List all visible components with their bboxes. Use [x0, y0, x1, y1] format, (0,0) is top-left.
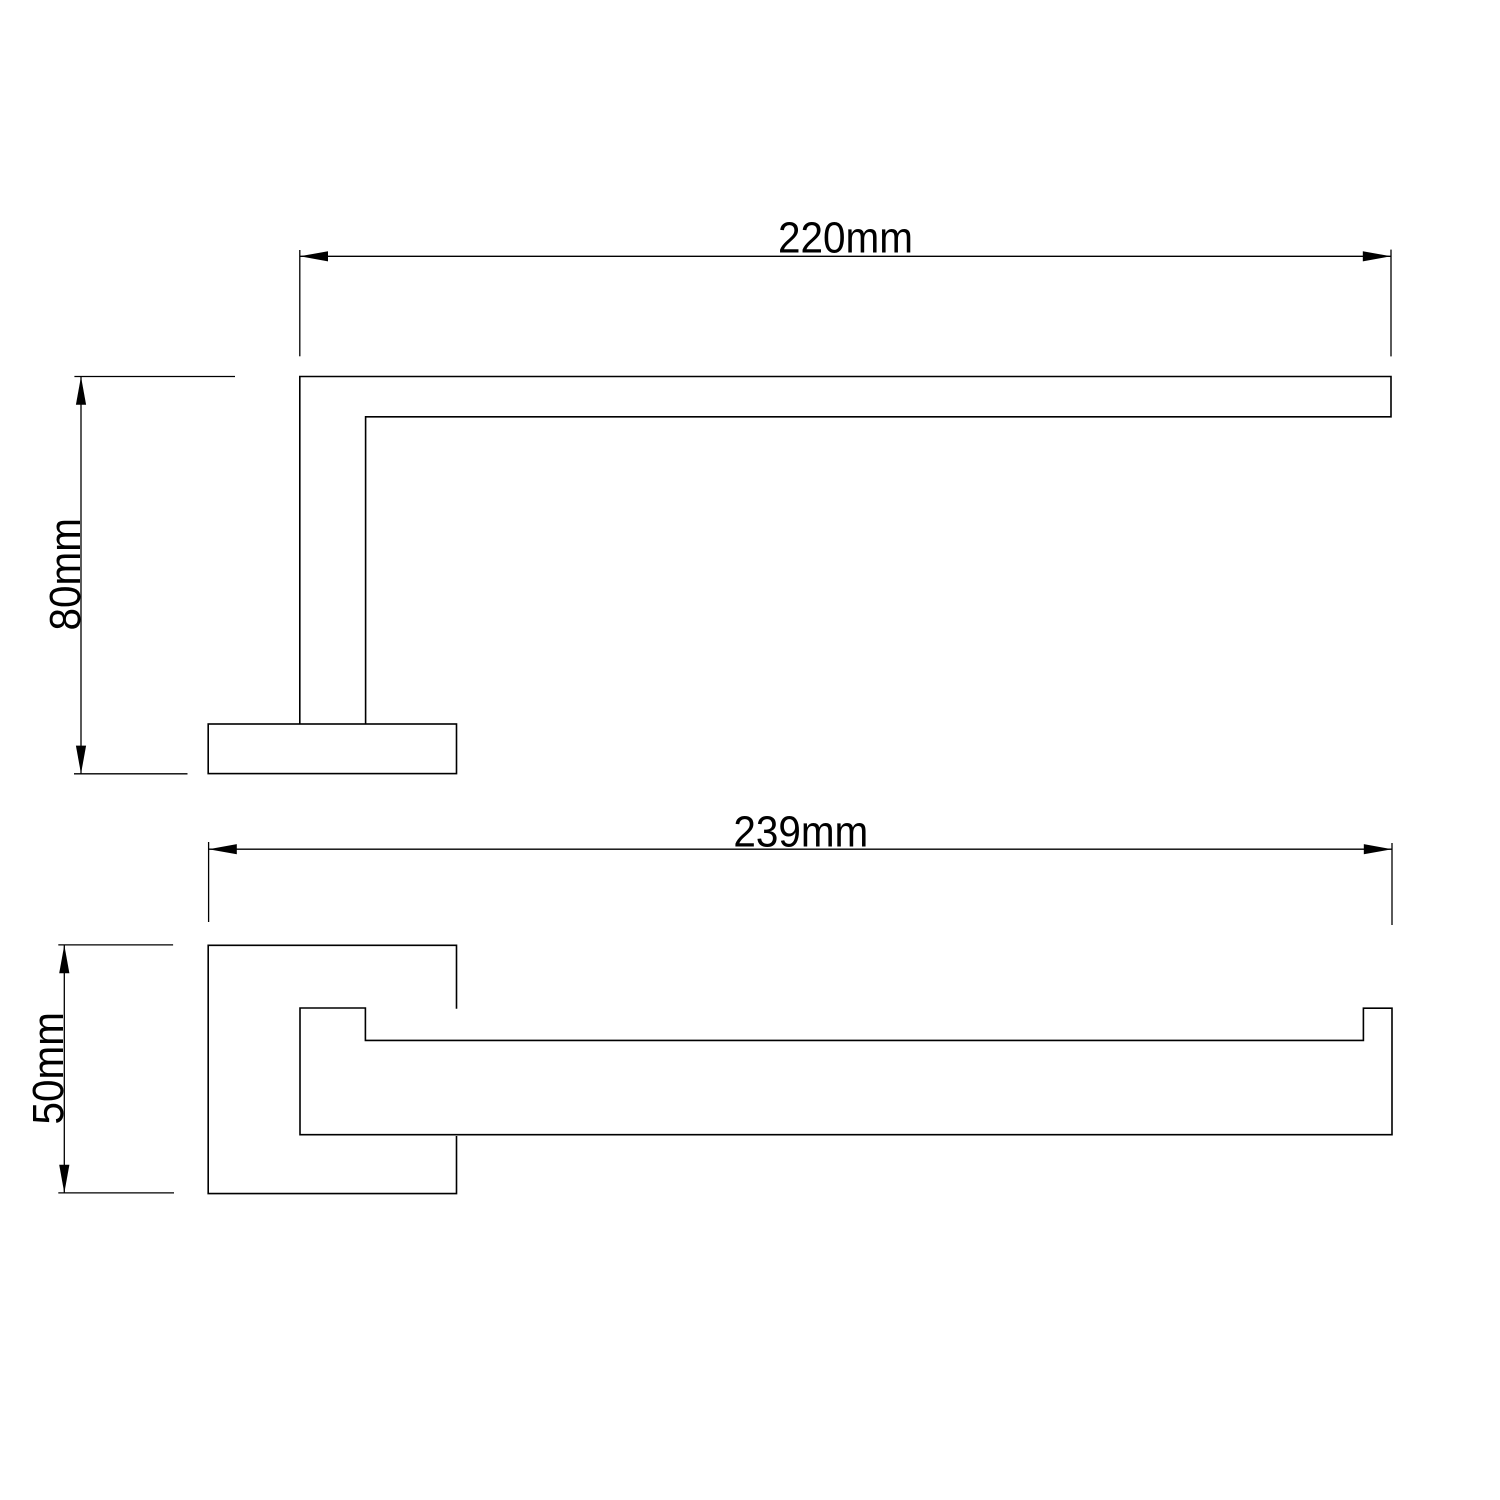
- svg-text:220mm: 220mm: [778, 213, 913, 262]
- svg-text:80mm: 80mm: [40, 518, 89, 630]
- svg-text:50mm: 50mm: [24, 1012, 73, 1124]
- svg-text:239mm: 239mm: [733, 807, 868, 856]
